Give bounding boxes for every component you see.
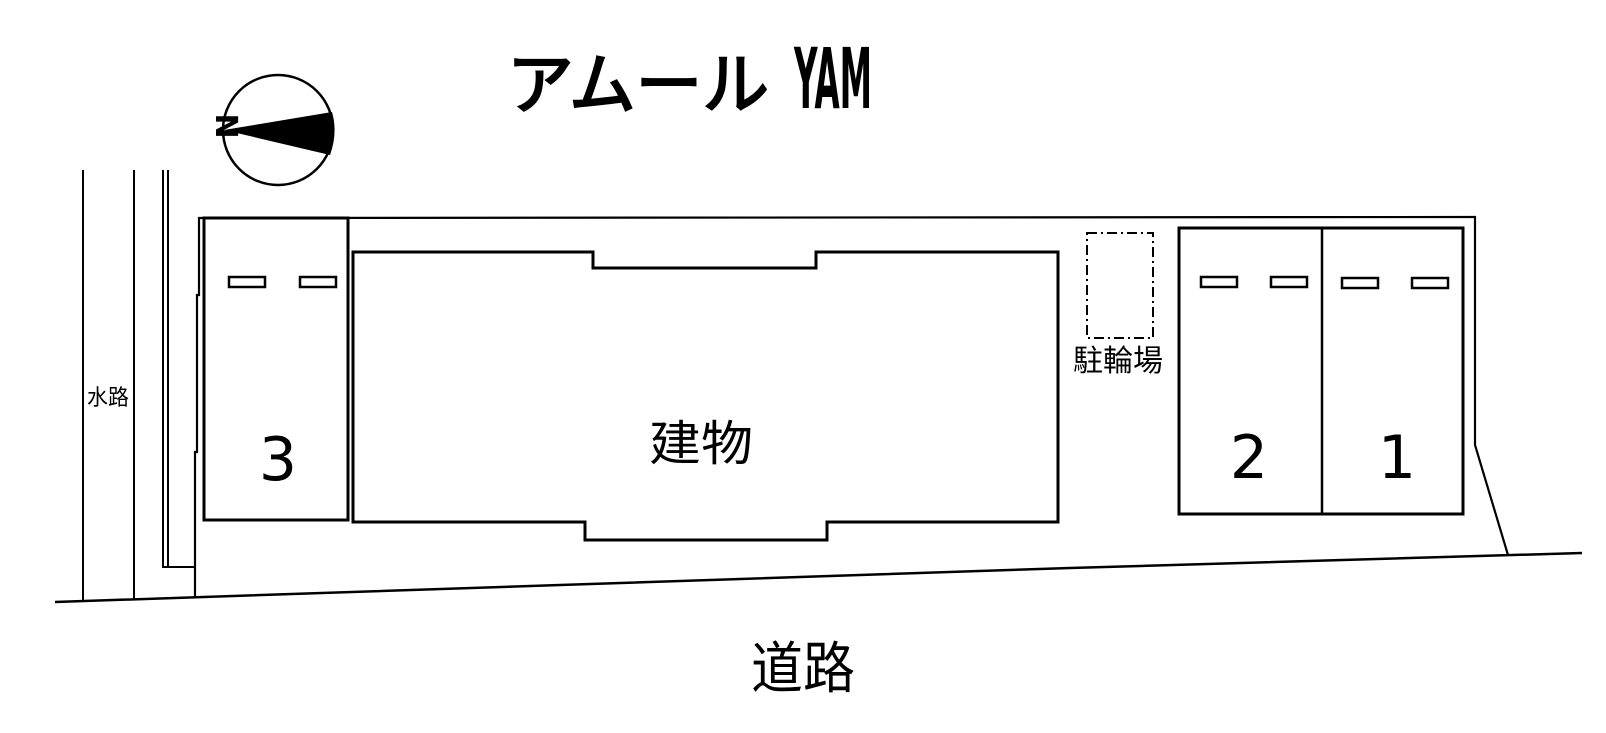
building-label: 建物 [649,416,753,472]
page-title-latin: YAM [794,30,872,128]
bicycle-parking-label: 駐輪場 [1073,344,1163,379]
parking-space-1-number: 1 [1378,423,1416,493]
wheel-stop-icon [1342,278,1378,288]
wheel-stop-icon [300,277,336,287]
parking-space-3: 3 [204,218,348,520]
road-label: 道路 [751,637,855,702]
parking-space-2-number: 2 [1230,423,1268,493]
site-plan-drawing: アムール YAM N 水路 道路 建物 駐輪場 [0,0,1606,733]
parking-spaces-2-1: 2 1 [1179,228,1463,514]
wheel-stop-icon [229,277,265,287]
parcel-boundary [195,217,1508,598]
building-outline [353,252,1058,540]
waterway-label: 水路 [87,386,129,411]
parking-space-3-number: 3 [259,425,297,495]
page-title-japanese: アムール [507,46,769,124]
compass: N [208,75,335,185]
wheel-stop-icon [1271,277,1307,287]
compass-north-label: N [208,113,243,138]
wheel-stop-icon [1201,277,1237,287]
site-plan: アムール YAM N 水路 道路 建物 駐輪場 [0,0,1606,733]
wheel-stop-icon [1412,278,1448,288]
road-edge-line [55,553,1582,602]
bicycle-parking-area [1087,233,1153,338]
